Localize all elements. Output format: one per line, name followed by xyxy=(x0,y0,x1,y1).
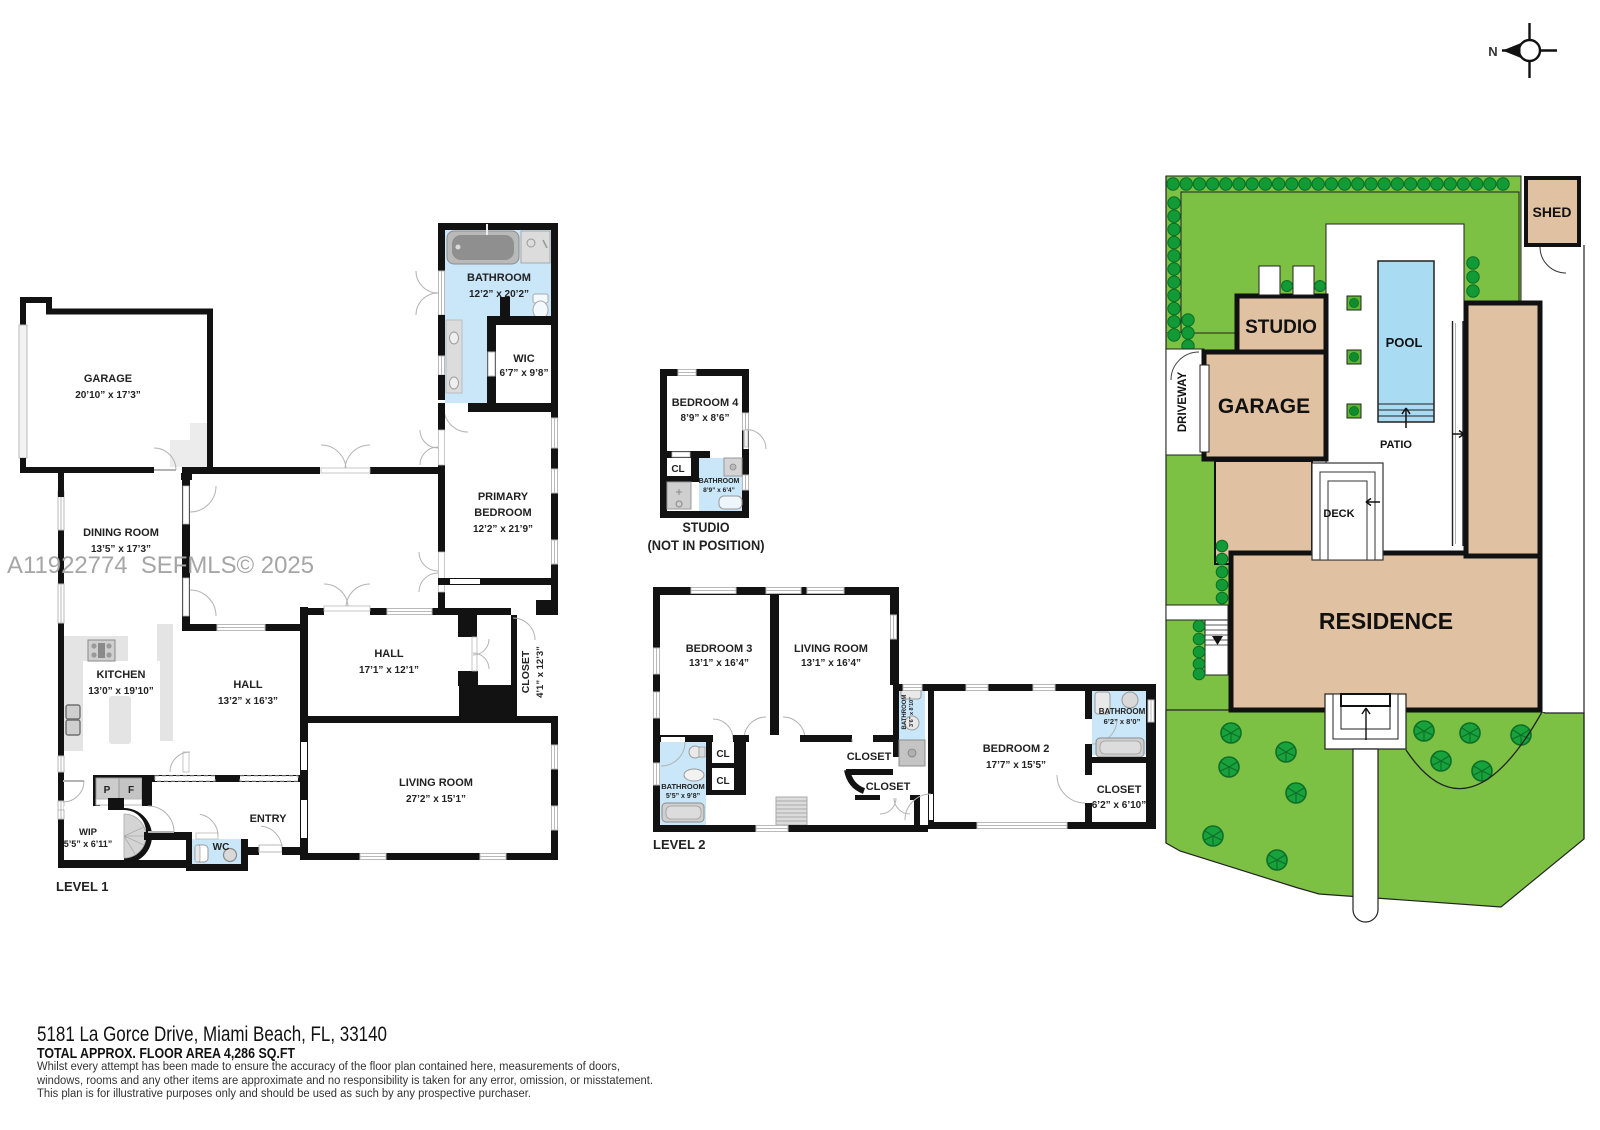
svg-text:SHED: SHED xyxy=(1533,204,1572,220)
svg-text:P: P xyxy=(104,785,111,796)
svg-text:PATIO: PATIO xyxy=(1380,439,1412,451)
svg-text:13’2” x 16’3”: 13’2” x 16’3” xyxy=(218,696,278,707)
svg-text:BATHROOM: BATHROOM xyxy=(902,695,908,730)
svg-text:(NOT IN POSITION): (NOT IN POSITION) xyxy=(648,537,765,553)
svg-text:POOL: POOL xyxy=(1386,335,1423,350)
svg-text:GARAGE: GARAGE xyxy=(1218,395,1310,418)
svg-text:WIP: WIP xyxy=(79,827,98,838)
svg-text:BATHROOM: BATHROOM xyxy=(1099,707,1146,716)
svg-text:13’0” x 19’10”: 13’0” x 19’10” xyxy=(88,686,154,697)
svg-text:CL: CL xyxy=(671,464,684,475)
svg-text:WC: WC xyxy=(213,842,230,853)
svg-text:CL: CL xyxy=(716,776,729,787)
svg-text:This plan is for illustrative: This plan is for illustrative purposes o… xyxy=(37,1088,531,1100)
svg-text:STUDIO: STUDIO xyxy=(683,519,730,535)
svg-text:CLOSET: CLOSET xyxy=(866,781,911,793)
svg-text:CLOSET: CLOSET xyxy=(520,650,532,693)
svg-text:17’1” x 12’1”: 17’1” x 12’1” xyxy=(359,665,419,676)
svg-text:BEDROOM 4: BEDROOM 4 xyxy=(672,397,740,409)
svg-text:KITCHEN: KITCHEN xyxy=(97,669,146,681)
svg-text:ENTRY: ENTRY xyxy=(250,813,288,825)
svg-text:13’1” x 16’4”: 13’1” x 16’4” xyxy=(689,658,749,669)
svg-text:windows, rooms and any other i: windows, rooms and any other items are a… xyxy=(36,1075,653,1087)
svg-text:CL: CL xyxy=(716,749,729,760)
svg-text:12’2” x 20’2”: 12’2” x 20’2” xyxy=(469,289,529,300)
svg-text:5’5” x 6’11”: 5’5” x 6’11” xyxy=(64,839,113,849)
svg-text:20’10” x 17’3”: 20’10” x 17’3” xyxy=(75,390,141,401)
svg-text:Whilst every attempt has been: Whilst every attempt has been made to en… xyxy=(37,1061,620,1073)
svg-text:PRIMARY: PRIMARY xyxy=(478,491,529,503)
svg-text:27’2” x 15’1”: 27’2” x 15’1” xyxy=(406,794,466,805)
svg-text:BEDROOM: BEDROOM xyxy=(474,507,531,519)
svg-text:BEDROOM 3: BEDROOM 3 xyxy=(686,643,753,655)
svg-text:8’9” x 8’6”: 8’9” x 8’6” xyxy=(681,413,730,424)
svg-text:12’2” x 21’9”: 12’2” x 21’9” xyxy=(473,524,533,535)
svg-text:BATHROOM: BATHROOM xyxy=(467,272,531,284)
svg-text:DECK: DECK xyxy=(1323,508,1354,520)
svg-text:HALL: HALL xyxy=(233,679,263,691)
svg-text:6’2” x 6’10”: 6’2” x 6’10” xyxy=(1092,800,1146,811)
svg-text:CLOSET: CLOSET xyxy=(1097,784,1142,796)
svg-text:8’9” x 6’4”: 8’9” x 6’4” xyxy=(703,487,735,494)
svg-text:LEVEL 2: LEVEL 2 xyxy=(653,837,706,852)
svg-text:5’5” x 9’8”: 5’5” x 9’8” xyxy=(666,793,700,800)
svg-text:4’1” x 12’3”: 4’1” x 12’3” xyxy=(535,646,546,698)
svg-text:3’6” x 8’10”: 3’6” x 8’10” xyxy=(909,697,915,727)
svg-text:6’2” x 8’0”: 6’2” x 8’0” xyxy=(1104,717,1141,726)
svg-text:BEDROOM 2: BEDROOM 2 xyxy=(983,743,1050,755)
svg-text:STUDIO: STUDIO xyxy=(1245,317,1317,338)
svg-text:DRIVEWAY: DRIVEWAY xyxy=(1177,372,1189,433)
svg-text:5181 La Gorce Drive, Miami Bea: 5181 La Gorce Drive, Miami Beach, FL, 33… xyxy=(37,1022,387,1046)
svg-text:RESIDENCE: RESIDENCE xyxy=(1319,608,1453,634)
svg-text:17’7” x 15’5”: 17’7” x 15’5” xyxy=(986,760,1046,771)
svg-text:A11922774 SEFMLS© 2025: A11922774 SEFMLS© 2025 xyxy=(7,552,314,579)
svg-text:DINING ROOM: DINING ROOM xyxy=(83,527,159,539)
svg-text:HALL: HALL xyxy=(374,648,404,660)
svg-text:TOTAL APPROX. FLOOR AREA 4,286: TOTAL APPROX. FLOOR AREA 4,286 SQ.FT xyxy=(37,1045,295,1062)
svg-text:N: N xyxy=(1488,44,1497,59)
svg-text:BATHROOM: BATHROOM xyxy=(699,478,740,485)
svg-text:LEVEL 1: LEVEL 1 xyxy=(56,879,109,894)
svg-text:13’1” x 16’4”: 13’1” x 16’4” xyxy=(801,658,861,669)
svg-text:WIC: WIC xyxy=(513,353,534,365)
svg-text:LIVING ROOM: LIVING ROOM xyxy=(399,777,473,789)
svg-text:CLOSET: CLOSET xyxy=(847,751,892,763)
svg-text:BATHROOM: BATHROOM xyxy=(661,782,705,791)
svg-text:F: F xyxy=(128,785,134,796)
svg-text:GARAGE: GARAGE xyxy=(84,373,132,385)
svg-text:LIVING ROOM: LIVING ROOM xyxy=(794,643,868,655)
svg-text:6’7” x 9’8”: 6’7” x 9’8” xyxy=(500,368,549,379)
